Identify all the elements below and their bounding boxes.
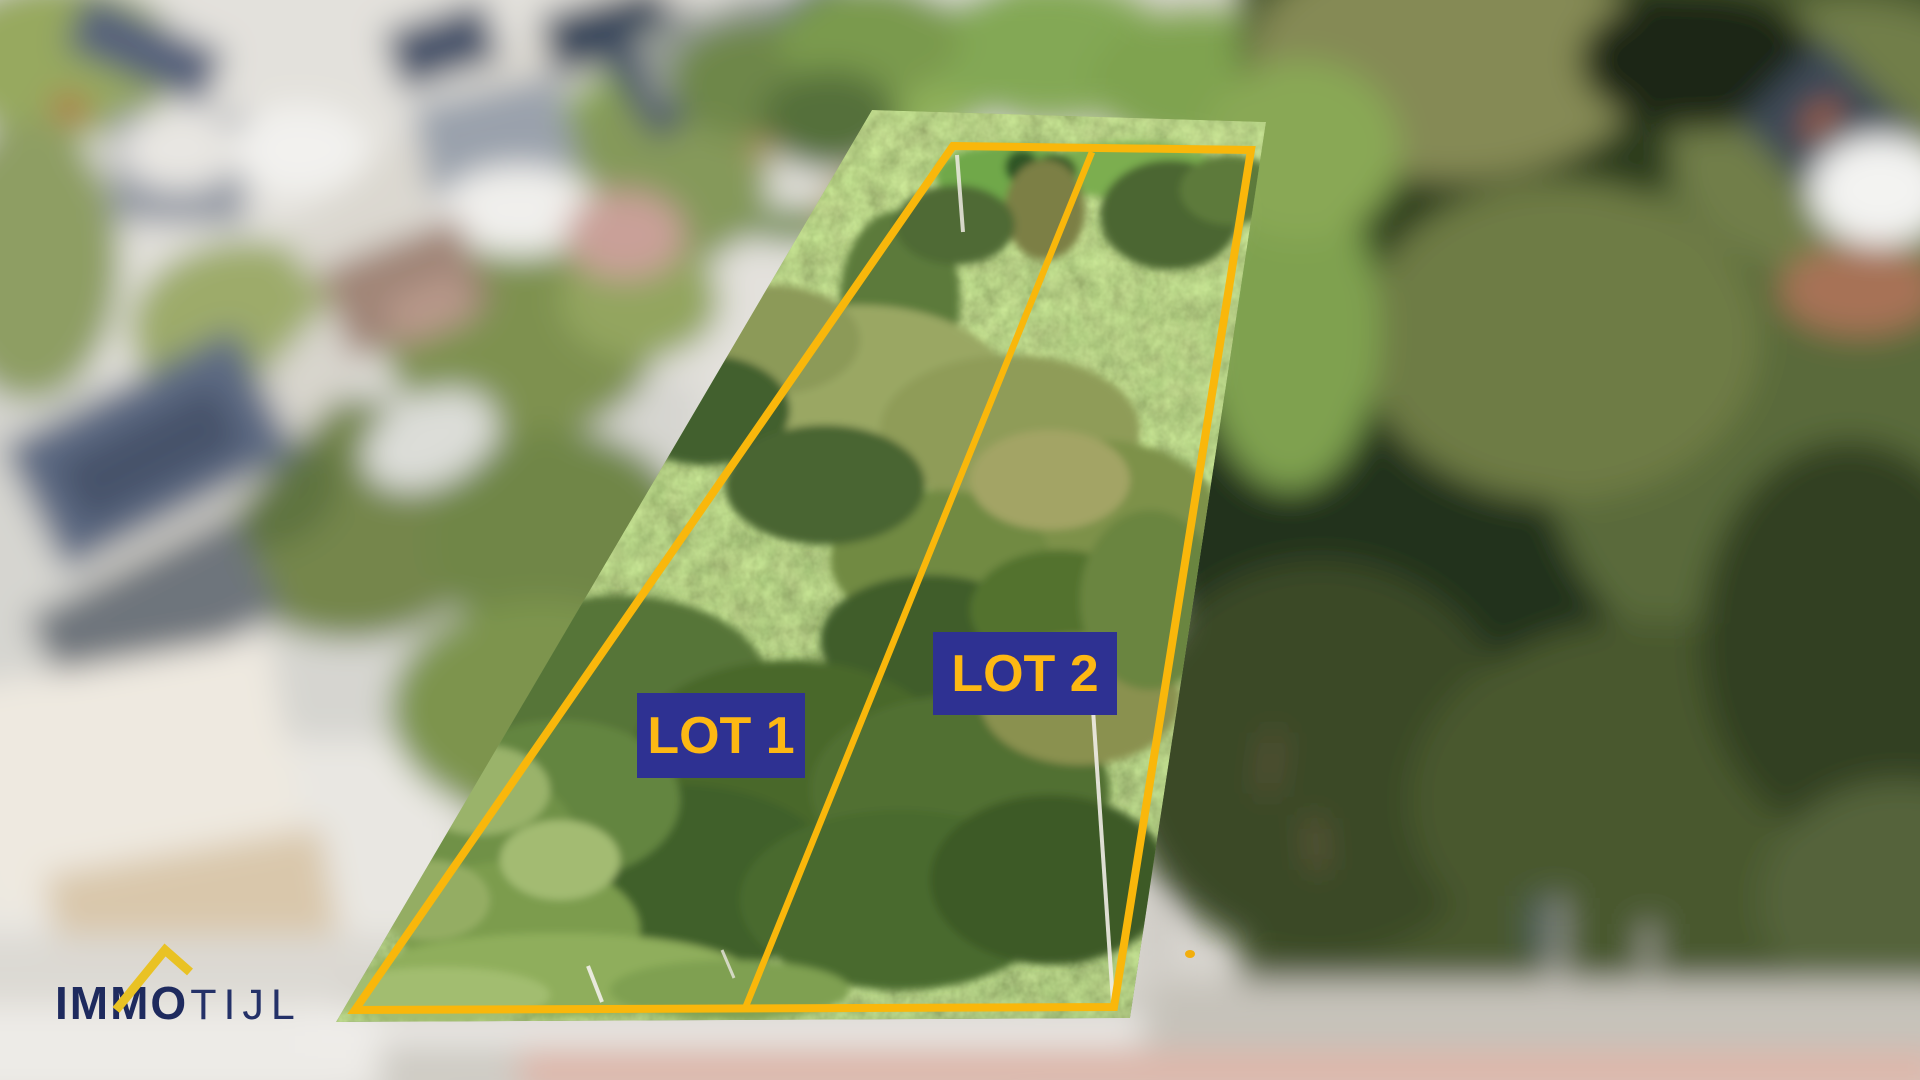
lot1-label: LOT 1: [637, 693, 805, 778]
lot2-label: LOT 2: [933, 632, 1117, 715]
boundary-marker-dot: [1185, 950, 1195, 958]
aerial-photo: LOT 1 LOT 2 IMMOTIJL: [0, 0, 1920, 1080]
lot2-label-text: LOT 2: [951, 648, 1098, 700]
brand-logo: IMMOTIJL: [48, 938, 318, 1033]
roof-icon: [100, 942, 210, 1022]
scene-artwork: [0, 0, 1920, 1080]
lot1-label-text: LOT 1: [647, 710, 794, 762]
